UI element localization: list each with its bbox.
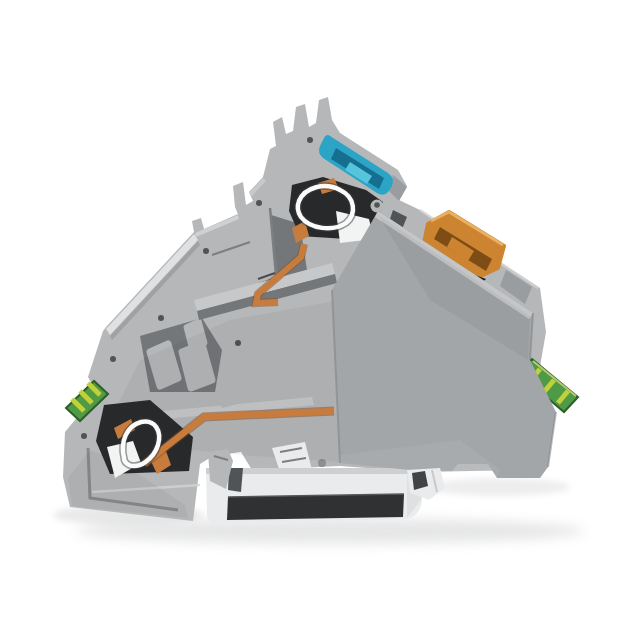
pin-dot — [158, 315, 164, 321]
terminal-block-photo — [0, 0, 640, 640]
shadow-plate — [430, 478, 570, 496]
pin-dot — [256, 200, 262, 206]
pin-dot — [110, 356, 116, 362]
pin-dot — [81, 433, 87, 439]
rail-slot — [227, 494, 404, 520]
pin-dot — [203, 248, 209, 254]
pivot-dot — [374, 202, 380, 208]
product-photo-canvas — [0, 0, 640, 640]
din-rail — [206, 468, 423, 523]
pin-dot — [307, 137, 313, 143]
